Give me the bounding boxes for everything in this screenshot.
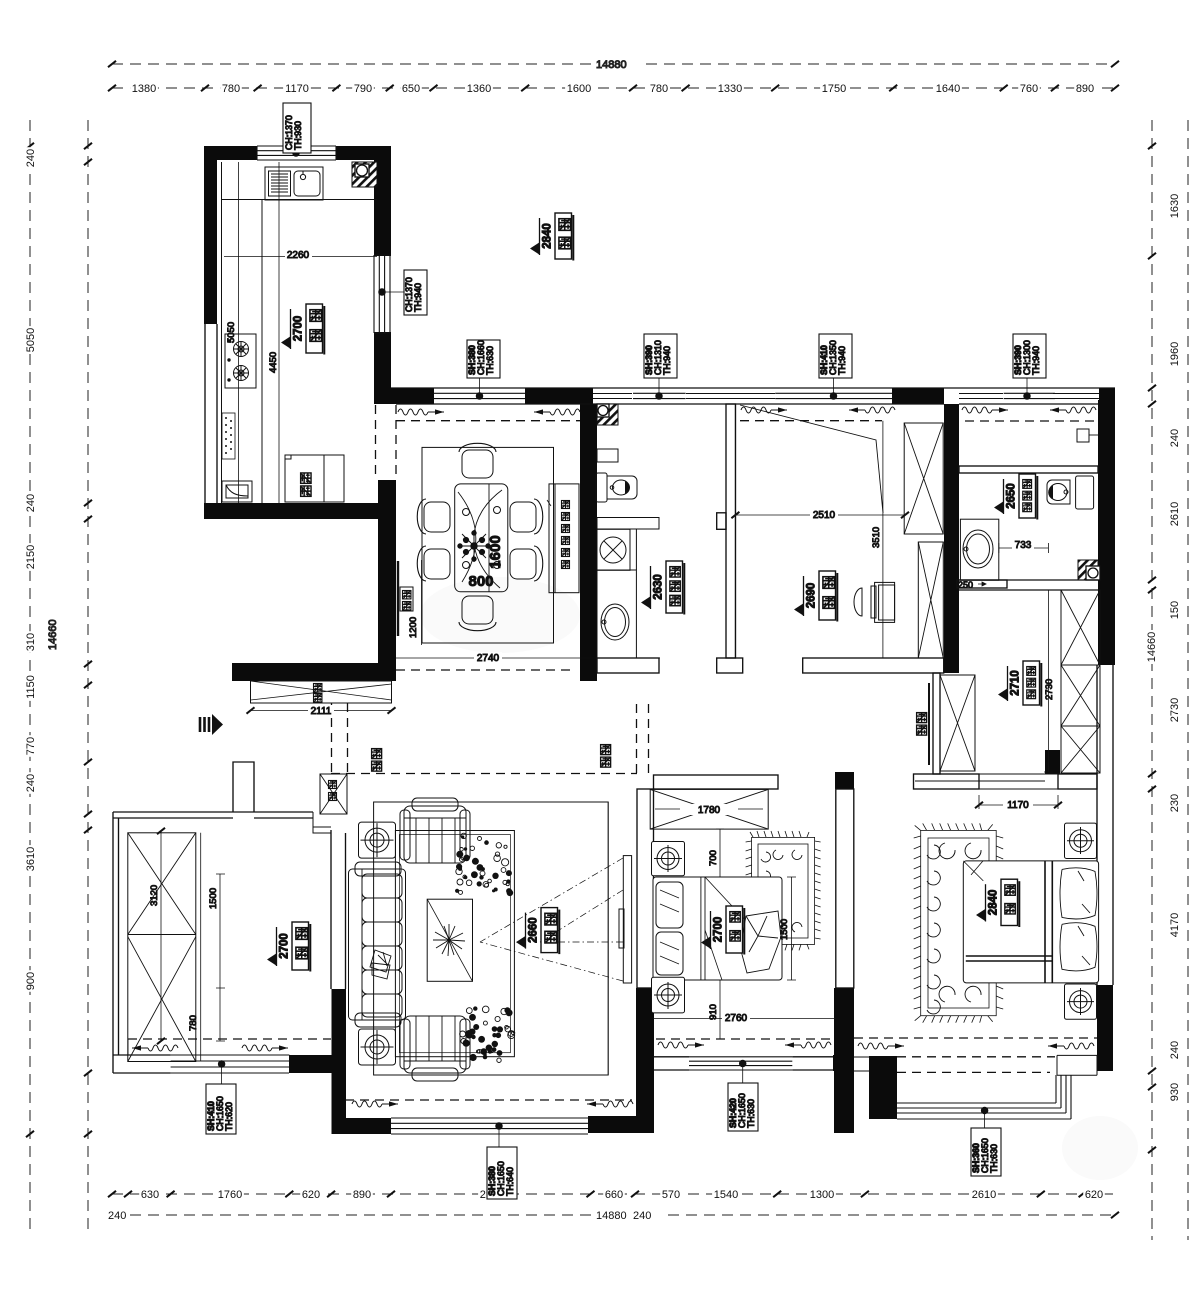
svg-text:3510: 3510 <box>871 527 882 548</box>
svg-text:14880: 14880 <box>596 59 627 71</box>
svg-text:TH:940: TH:940 <box>1031 346 1041 375</box>
svg-text:2630: 2630 <box>653 574 665 600</box>
svg-text:240: 240 <box>25 494 37 512</box>
svg-text:2610: 2610 <box>1169 502 1181 526</box>
svg-text:240: 240 <box>1169 1041 1181 1059</box>
svg-text:1600: 1600 <box>567 83 591 95</box>
svg-text:2111: 2111 <box>311 706 332 717</box>
svg-text:733: 733 <box>1015 540 1032 551</box>
svg-text:790: 790 <box>354 83 372 95</box>
svg-text:1300: 1300 <box>810 1189 834 1201</box>
svg-text:2760: 2760 <box>725 1013 748 1024</box>
svg-text:240: 240 <box>25 149 37 167</box>
svg-text:1170: 1170 <box>285 83 309 95</box>
svg-text:310: 310 <box>25 633 37 651</box>
svg-text:1200: 1200 <box>408 617 419 638</box>
svg-text:1960: 1960 <box>1169 342 1181 366</box>
svg-text:1780: 1780 <box>698 805 721 816</box>
svg-text:1630: 1630 <box>1169 194 1181 218</box>
svg-text:2740: 2740 <box>477 653 500 664</box>
svg-text:630: 630 <box>141 1189 159 1201</box>
svg-text:3120: 3120 <box>149 885 160 906</box>
svg-text:700: 700 <box>708 850 719 866</box>
svg-text:2700: 2700 <box>713 917 725 943</box>
svg-text:800: 800 <box>468 573 493 590</box>
svg-text:230: 230 <box>1169 794 1181 812</box>
svg-text:1170: 1170 <box>1007 800 1029 811</box>
svg-text:2650: 2650 <box>1006 483 1018 509</box>
svg-text:1500: 1500 <box>779 919 790 940</box>
svg-text:TH:940: TH:940 <box>837 346 847 375</box>
svg-text:TH:630: TH:630 <box>746 1099 756 1128</box>
svg-text:2730: 2730 <box>1169 698 1181 722</box>
svg-text:760: 760 <box>1020 83 1038 95</box>
svg-text:1150: 1150 <box>25 675 37 699</box>
svg-text:14660: 14660 <box>47 619 59 650</box>
svg-text:780: 780 <box>222 83 240 95</box>
svg-text:TH:630: TH:630 <box>989 1144 999 1173</box>
svg-text:250: 250 <box>958 580 973 590</box>
svg-text:TH:620: TH:620 <box>224 1102 234 1131</box>
svg-text:2150: 2150 <box>25 545 37 569</box>
svg-text:2510: 2510 <box>813 510 836 521</box>
svg-text:1600: 1600 <box>487 535 504 568</box>
svg-text:240: 240 <box>1169 429 1181 447</box>
svg-text:900: 900 <box>25 972 37 990</box>
svg-text:240: 240 <box>633 1210 651 1222</box>
svg-text:2840: 2840 <box>988 890 1000 916</box>
svg-text:650: 650 <box>402 83 420 95</box>
svg-text:150: 150 <box>1169 601 1181 619</box>
svg-text:2840: 2840 <box>542 223 554 249</box>
svg-text:770: 770 <box>25 737 37 755</box>
svg-text:930: 930 <box>1169 1083 1181 1101</box>
svg-text:TH:640: TH:640 <box>505 1167 515 1196</box>
svg-text:2260: 2260 <box>287 250 310 261</box>
svg-text:1640: 1640 <box>936 83 960 95</box>
svg-text:780: 780 <box>650 83 668 95</box>
svg-text:890: 890 <box>1076 83 1094 95</box>
svg-text:5050: 5050 <box>226 322 237 343</box>
svg-text:TH:630: TH:630 <box>485 346 495 375</box>
svg-text:660: 660 <box>605 1189 623 1201</box>
svg-text:2690: 2690 <box>806 583 818 609</box>
svg-text:1760: 1760 <box>218 1189 242 1201</box>
svg-text:4450: 4450 <box>268 352 279 373</box>
svg-text:1500: 1500 <box>208 888 219 909</box>
svg-text:570: 570 <box>662 1189 680 1201</box>
svg-text:2660: 2660 <box>528 917 540 943</box>
svg-text:1540: 1540 <box>714 1189 738 1201</box>
svg-text:5050: 5050 <box>25 328 37 352</box>
svg-text:2610: 2610 <box>972 1189 996 1201</box>
svg-text:TH:940: TH:940 <box>413 283 423 312</box>
svg-text:620: 620 <box>302 1189 320 1201</box>
svg-text:3610: 3610 <box>25 847 37 871</box>
svg-text:1750: 1750 <box>822 83 846 95</box>
svg-text:4170: 4170 <box>1169 913 1181 937</box>
svg-text:910: 910 <box>708 1004 719 1020</box>
svg-text:TH:940: TH:940 <box>662 346 672 375</box>
svg-text:1330: 1330 <box>718 83 742 95</box>
svg-text:240: 240 <box>25 774 37 792</box>
svg-text:620: 620 <box>1085 1189 1103 1201</box>
svg-text:1380: 1380 <box>132 83 156 95</box>
svg-text:780: 780 <box>188 1015 199 1031</box>
svg-text:2730: 2730 <box>1044 679 1055 700</box>
svg-text:2710: 2710 <box>1010 670 1022 696</box>
svg-text:1360: 1360 <box>467 83 491 95</box>
svg-text:2700: 2700 <box>279 933 291 959</box>
svg-text:14660: 14660 <box>1146 632 1158 663</box>
svg-text:14880: 14880 <box>596 1210 627 1222</box>
svg-text:890: 890 <box>353 1189 371 1201</box>
svg-text:2700: 2700 <box>293 316 305 342</box>
svg-text:240: 240 <box>108 1210 126 1222</box>
svg-text:TH:930: TH:930 <box>293 121 303 150</box>
